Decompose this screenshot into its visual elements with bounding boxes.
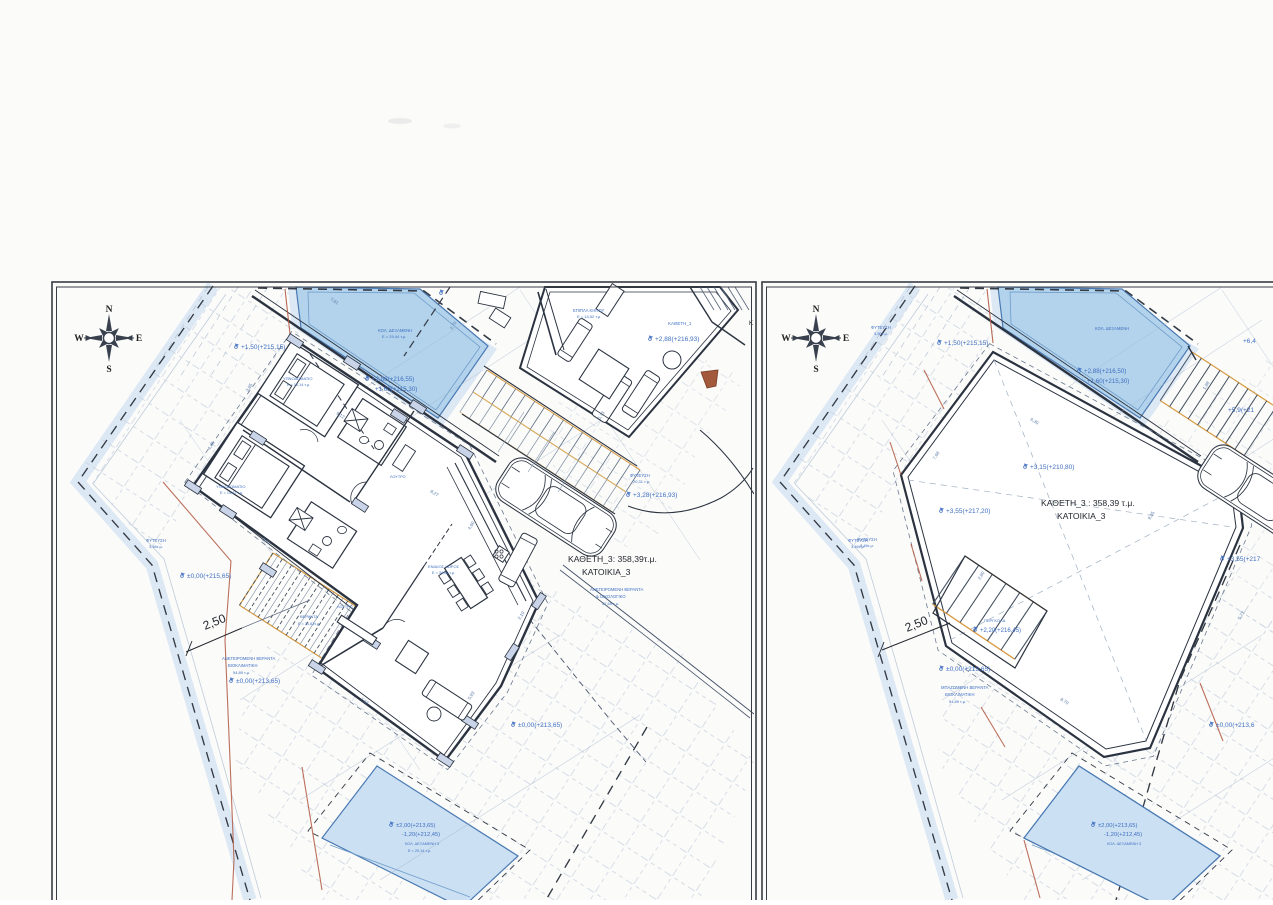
svg-text:ΦΥΤΕΥΣΗ: ΦΥΤΕΥΣΗ	[871, 325, 891, 330]
svg-text:+1,60(+215,30): +1,60(+215,30)	[375, 386, 417, 393]
svg-text:ΚΟΛ. ΔΕΞΑΜΕΝΗ 3: ΚΟΛ. ΔΕΞΑΜΕΝΗ 3	[405, 842, 439, 846]
svg-text:±2,00(+213,65): ±2,00(+213,65)	[396, 823, 436, 829]
svg-text:+3,55(+217,20): +3,55(+217,20)	[946, 508, 990, 515]
svg-text:ΠΕΡΓΚΟΛΑ: ΠΕΡΓΚΟΛΑ	[984, 618, 1006, 623]
svg-text:W: W	[74, 334, 84, 344]
svg-text:±0,00(+213,65): ±0,00(+213,65)	[236, 678, 280, 685]
svg-text:±2,00(+213,65): ±2,00(+213,65)	[1098, 823, 1138, 829]
svg-text:ΕΝΙΑΙΟΣ ΧΩΡΟΣ: ΕΝΙΑΙΟΣ ΧΩΡΟΣ	[428, 564, 460, 569]
svg-text:ΚΑΘΕΤΗ_3: 358,39τ.μ.: ΚΑΘΕΤΗ_3: 358,39τ.μ.	[568, 554, 657, 564]
svg-text:ΑΝΕΓΕΙΡΟΜΕΝΗ ΒΕΡΑΝΤΑ: ΑΝΕΓΕΙΡΟΜΕΝΗ ΒΕΡΑΝΤΑ	[222, 656, 276, 661]
svg-text:+5,9(+21: +5,9(+21	[1228, 407, 1254, 414]
svg-text:Ε = 14,47 τ.μ.: Ε = 14,47 τ.μ.	[220, 491, 243, 495]
svg-text:N: N	[106, 305, 113, 315]
svg-text:ΛΟΥΤΡΟ: ΛΟΥΤΡΟ	[337, 605, 353, 609]
svg-text:ΑΝΕΓΕΙΡΟΜΕΝΗ ΒΕΡΑΝΤΑ: ΑΝΕΓΕΙΡΟΜΕΝΗ ΒΕΡΑΝΤΑ	[590, 587, 644, 592]
svg-text:S: S	[813, 365, 818, 375]
svg-text:E: E	[843, 334, 849, 344]
svg-text:ΚΑΤΟΙΚΙΑ_3: ΚΑΤΟΙΚΙΑ_3	[582, 567, 631, 577]
svg-text:-1,20(+212,45): -1,20(+212,45)	[402, 832, 440, 838]
svg-text:ΦΥΤΕΥΣΗ: ΦΥΤΕΥΣΗ	[630, 473, 650, 478]
svg-text:3,46τ.μ.: 3,46τ.μ.	[149, 544, 163, 549]
svg-text:Ε = 29,44 τ.μ.: Ε = 29,44 τ.μ.	[382, 334, 406, 339]
svg-text:47,65 τ.μ.: 47,65 τ.μ.	[602, 601, 619, 606]
svg-text:ΚΑΘΕΤΗ_1: ΚΑΘΕΤΗ_1	[668, 321, 692, 326]
svg-text:+6,4: +6,4	[1243, 338, 1256, 345]
svg-text:Ε = 31,63τ.μ.: Ε = 31,63τ.μ.	[298, 622, 320, 626]
svg-text:+2,88(+216,55): +2,88(+216,55)	[372, 376, 414, 383]
svg-text:+1,60(+215,30): +1,60(+215,30)	[1087, 378, 1129, 385]
svg-text:+3,15(+210,80): +3,15(+210,80)	[1030, 464, 1074, 471]
svg-text:3,50τ.μ.: 3,50τ.μ.	[874, 331, 888, 336]
svg-text:ΚΟΛ. ΔΕΞΑΜΕΝΗ: ΚΟΛ. ΔΕΞΑΜΕΝΗ	[378, 328, 412, 333]
svg-text:Ε = 20,14 τ.μ.: Ε = 20,14 τ.μ.	[408, 849, 431, 853]
svg-text:ΥΠΝΟΔΩΜΑΤΙΟ: ΥΠΝΟΔΩΜΑΤΙΟ	[283, 376, 313, 381]
svg-text:54,89 τ.μ.: 54,89 τ.μ.	[949, 699, 966, 704]
svg-text:+1,50(+215,15): +1,50(+215,15)	[241, 344, 285, 351]
svg-text:20,31 τ.μ.: 20,31 τ.μ.	[633, 479, 650, 484]
svg-text:8,46τ.μ.: 8,46τ.μ.	[860, 543, 874, 548]
svg-text:ΚΟΛ. ΔΕΞΑΜΕΝΗ 3: ΚΟΛ. ΔΕΞΑΜΕΝΗ 3	[1107, 842, 1141, 846]
svg-text:Ε = 12,14 τ.μ.: Ε = 12,14 τ.μ.	[287, 383, 310, 387]
svg-text:Ε = 14,52 τ.μ.: Ε = 14,52 τ.μ.	[577, 314, 601, 319]
svg-text:-1,20(+212,45): -1,20(+212,45)	[1104, 832, 1142, 838]
svg-text:+1,50(+215,15): +1,50(+215,15)	[944, 340, 988, 347]
svg-text:W: W	[781, 334, 791, 344]
svg-text:E: E	[136, 334, 142, 344]
svg-text:+3,55(+217: +3,55(+217	[1227, 556, 1261, 563]
svg-text:ΦΥΤΕΥΣΗ: ΦΥΤΕΥΣΗ	[857, 537, 877, 542]
svg-text:±0,00(+213,6: ±0,00(+213,6	[1216, 722, 1255, 729]
svg-text:ΕΠΙΠΛΑ ΚΗΠΟΥ: ΕΠΙΠΛΑ ΚΗΠΟΥ	[573, 308, 604, 313]
svg-text:54,89 τ.μ.: 54,89 τ.μ.	[233, 670, 250, 675]
svg-text:ΒΙΟΚΛΙΜΑΤΙΚΗ: ΒΙΟΚΛΙΜΑΤΙΚΗ	[228, 663, 257, 668]
svg-text:ΛΟΥΤΡΟ: ΛΟΥΤΡΟ	[390, 475, 406, 479]
svg-text:+2,88(+216,93): +2,88(+216,93)	[655, 336, 699, 343]
svg-text:ΒΙΟΚΛΙΜΑΤΙΚΗ: ΒΙΟΚΛΙΜΑΤΙΚΗ	[945, 692, 974, 697]
svg-text:ΦΥΤΕΥΣΗ: ΦΥΤΕΥΣΗ	[146, 538, 166, 543]
svg-text:+3,28(+216,93): +3,28(+216,93)	[633, 492, 677, 499]
svg-text:ΒΕΡΑΝΤΑ: ΒΕΡΑΝΤΑ	[300, 614, 318, 619]
svg-text:±0,00(+213,65): ±0,00(+213,65)	[946, 666, 990, 673]
svg-text:N: N	[813, 305, 820, 315]
svg-text:+2,20(+216,45): +2,20(+216,45)	[980, 628, 1021, 634]
svg-text:& ΟΙΚΟΛΟΓΙΚΟ: & ΟΙΚΟΛΟΓΙΚΟ	[596, 594, 626, 599]
svg-text:+2,88(+216,50): +2,88(+216,50)	[1084, 368, 1126, 375]
svg-text:±0,00(+213,65): ±0,00(+213,65)	[518, 722, 562, 729]
svg-text:ΚΑΘΕΤΗ_3 : 358,39 τ.μ.: ΚΑΘΕΤΗ_3 : 358,39 τ.μ.	[1041, 498, 1135, 508]
svg-text:S: S	[106, 365, 111, 375]
svg-text:ΥΠΝΟΔΩΜΑΤΙΟ: ΥΠΝΟΔΩΜΑΤΙΟ	[216, 484, 246, 489]
svg-text:±0,00(+215,65): ±0,00(+215,65)	[187, 573, 231, 580]
svg-text:ΚΟΛ. ΔΕΞΑΜΕΝΗ: ΚΟΛ. ΔΕΞΑΜΕΝΗ	[1095, 326, 1129, 331]
svg-text:ΚΑΤΟΙΚΙΑ_3: ΚΑΤΟΙΚΙΑ_3	[1057, 511, 1106, 521]
svg-text:Ε = 34,00 τ.μ.: Ε = 34,00 τ.μ.	[432, 571, 455, 575]
svg-text:ΜΠΑΖΩΜΕΝΗ ΒΕΡΑΝΤΑ: ΜΠΑΖΩΜΕΝΗ ΒΕΡΑΝΤΑ	[941, 685, 989, 690]
